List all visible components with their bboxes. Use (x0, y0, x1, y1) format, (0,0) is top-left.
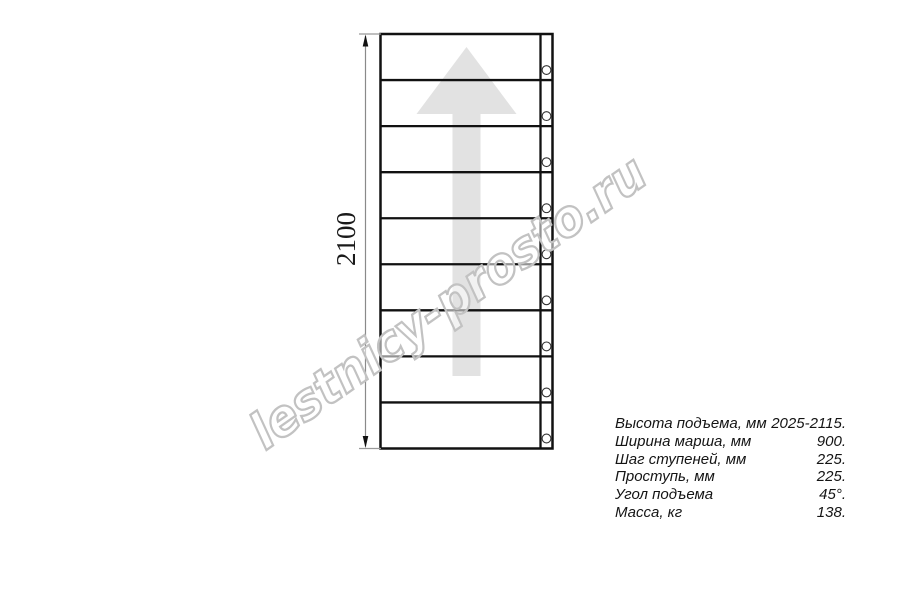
spec-value: 45°. (819, 486, 846, 504)
spec-label: Проступь, мм (615, 468, 715, 486)
spec-value: 900. (817, 433, 846, 451)
spec-value: 225. (817, 468, 846, 486)
spec-value: 2025-2115. (771, 415, 846, 433)
spec-row: Шаг ступеней, мм225. (615, 451, 846, 469)
spec-value: 225. (817, 451, 846, 469)
spec-label: Высота подъема, мм (615, 415, 767, 433)
dimension-label: 2100 (331, 212, 361, 266)
spec-value: 138. (817, 504, 846, 522)
mounting-hole (542, 296, 551, 305)
spec-row: Высота подъема, мм2025-2115. (615, 415, 846, 433)
spec-row: Угол подъема45°. (615, 486, 846, 504)
spec-row: Проступь, мм225. (615, 468, 846, 486)
spec-label: Масса, кг (615, 504, 682, 522)
mounting-hole (542, 112, 551, 121)
spec-row: Ширина марша, мм900. (615, 433, 846, 451)
mounting-hole (542, 434, 551, 443)
spec-label: Угол подъема (615, 486, 713, 504)
mounting-hole (542, 342, 551, 351)
dimension-arrowhead-bottom (363, 436, 369, 448)
mounting-hole (542, 66, 551, 75)
drawing-canvas: 2100 lestnicy-prosto.ru Высота подъема, … (0, 0, 900, 600)
mounting-hole (542, 388, 551, 397)
spec-label: Шаг ступеней, мм (615, 451, 746, 469)
watermark-text: lestnicy-prosto.ru (239, 144, 657, 461)
spec-row: Масса, кг138. (615, 504, 846, 522)
spec-label: Ширина марша, мм (615, 433, 751, 451)
spec-table: Высота подъема, мм2025-2115.Ширина марша… (615, 415, 846, 522)
mounting-hole (542, 158, 551, 167)
dimension-arrowhead-top (363, 35, 369, 47)
